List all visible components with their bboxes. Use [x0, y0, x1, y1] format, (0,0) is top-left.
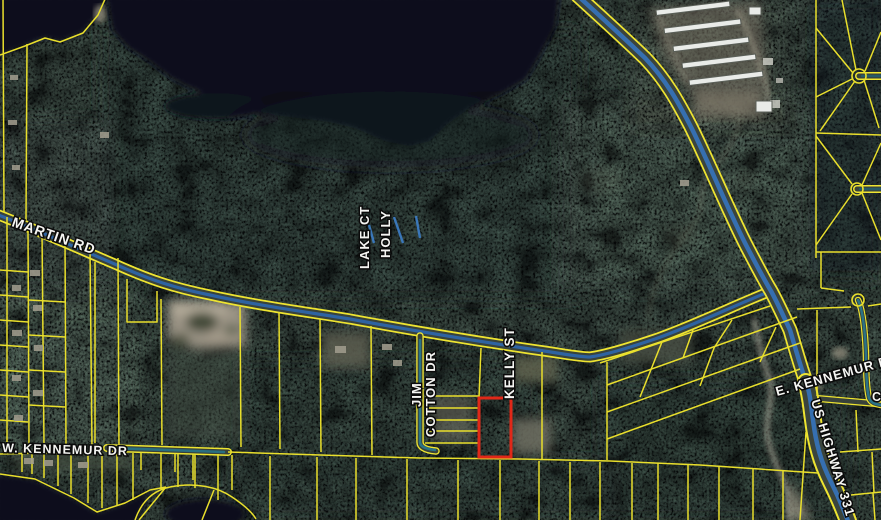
svg-text:CR: CR [872, 390, 881, 404]
svg-text:HOLLY: HOLLY [378, 210, 393, 258]
svg-text:LAKE CT: LAKE CT [357, 206, 372, 269]
svg-text:KELLY ST: KELLY ST [502, 327, 517, 399]
svg-text:JIM: JIM [409, 382, 424, 407]
svg-text:COTTON DR: COTTON DR [423, 351, 438, 437]
